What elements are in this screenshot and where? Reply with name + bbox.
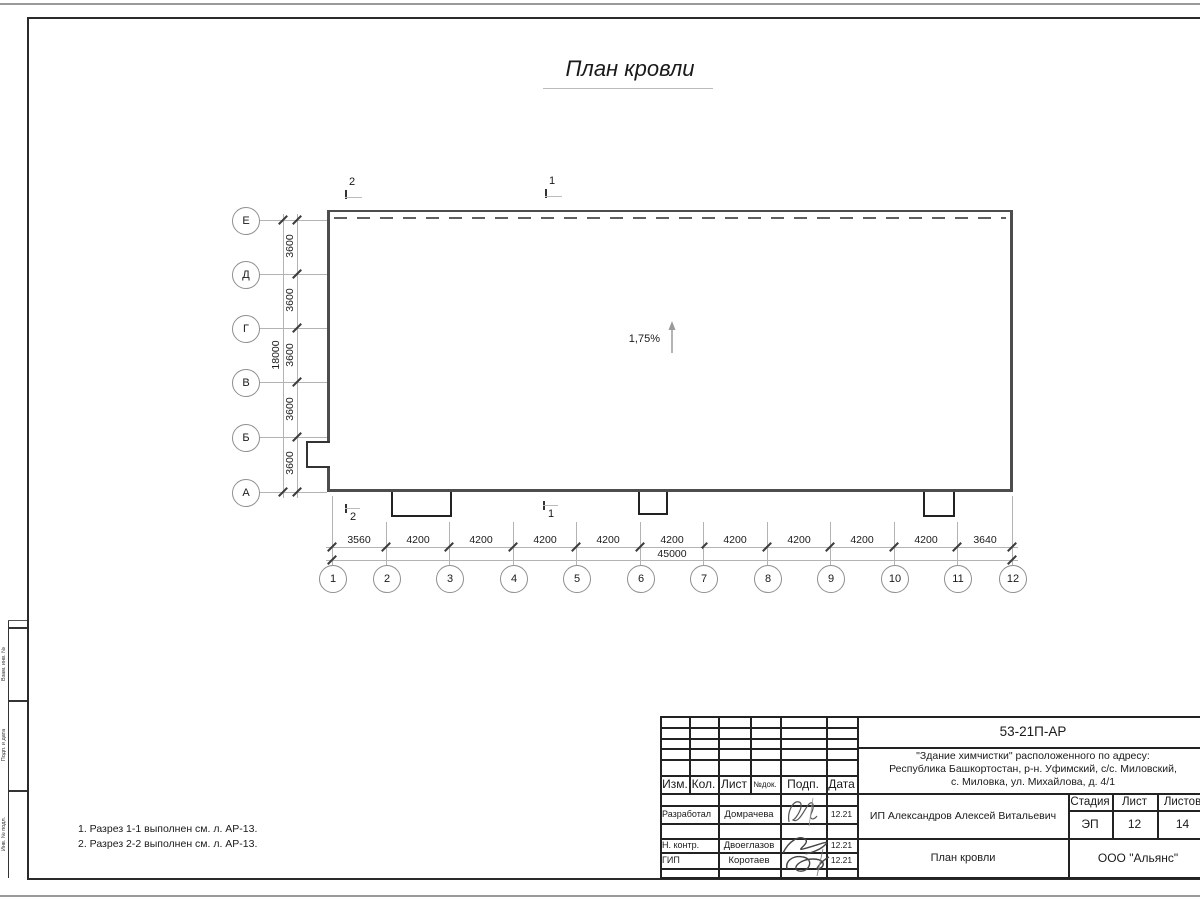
dim-label: 4200 — [777, 534, 821, 546]
dim-label: 3600 — [284, 226, 296, 266]
section-number: 2 — [350, 511, 356, 523]
dim-label: 4200 — [650, 534, 694, 546]
tb-header-ndok: №док. — [750, 775, 780, 793]
dim-label: 4200 — [840, 534, 884, 546]
dim-label: 3600 — [284, 280, 296, 320]
tb-header-list: Лист — [718, 775, 750, 793]
slope-arrow-icon — [666, 321, 678, 355]
screen-bottom-line — [0, 895, 1200, 897]
dim-label: 3600 — [284, 389, 296, 429]
axis-bubble: А — [232, 479, 260, 507]
axis-bubble: 8 — [754, 565, 782, 593]
frame-side-label: Подп. и дата — [0, 700, 8, 790]
axis-bubble: 6 — [627, 565, 655, 593]
wall-notch-bottom — [638, 492, 668, 515]
tb-doc-title: План кровли — [858, 838, 1068, 877]
drawing-sheet: Взам. инв. № Подп. и дата Инв. № подл. П… — [0, 0, 1200, 900]
tb-header-data: Дата — [826, 775, 857, 793]
axis-bubble: 11 — [944, 565, 972, 593]
section-number: 1 — [548, 508, 554, 520]
tb-stage-label: Стадия — [1068, 793, 1112, 810]
tb-name: Двоеглазов — [718, 838, 780, 852]
axis-bubble: 3 — [436, 565, 464, 593]
axis-bubble: Г — [232, 315, 260, 343]
section-number: 1 — [549, 175, 555, 187]
ridge-dashed-line — [334, 217, 1006, 219]
axis-bubble: 9 — [817, 565, 845, 593]
axis-bubble: 1 — [319, 565, 347, 593]
wall-notch-left — [306, 441, 330, 468]
tb-header-kol: Кол. — [689, 775, 718, 793]
signature-icon — [783, 794, 827, 830]
axis-bubble: Е — [232, 207, 260, 235]
tb-role: ГИП — [662, 852, 718, 868]
tb-company: ООО "Альянс" — [1068, 838, 1200, 877]
dim-total-label: 45000 — [642, 548, 702, 560]
frame-side-label: Инв. № подл. — [0, 790, 8, 878]
page-title: План кровли — [500, 56, 760, 82]
axis-bubble: 5 — [563, 565, 591, 593]
axis-bubble: Д — [232, 261, 260, 289]
dim-label: 3560 — [337, 534, 381, 546]
tb-date: 12.21 — [826, 805, 857, 823]
tb-role: Разработал — [662, 805, 718, 823]
tb-sheet-label: Лист — [1112, 793, 1157, 810]
note-line: 2. Разрез 2-2 выполнен см. л. АР-13. — [78, 837, 257, 852]
tb-sheets-label: Листов — [1157, 793, 1200, 810]
note-line: 1. Разрез 1-1 выполнен см. л. АР-13. — [78, 822, 257, 837]
axis-bubble: 2 — [373, 565, 401, 593]
frame-side-label: Взам. инв. № — [0, 627, 8, 700]
dim-label: 4200 — [713, 534, 757, 546]
signature-icon — [779, 831, 835, 877]
tb-project-line: с. Миловка, ул. Михайлова, д. 4/1 — [858, 776, 1200, 789]
tb-name: Домрачева — [718, 805, 780, 823]
tb-header-podp: Подп. — [780, 775, 826, 793]
tb-sheets-value: 14 — [1157, 810, 1200, 838]
wall-notch-bottom — [391, 492, 452, 517]
dim-total-label: 18000 — [270, 330, 282, 380]
slope-label: 1,75% — [600, 333, 660, 345]
axis-bubble: 4 — [500, 565, 528, 593]
axis-bubble: 7 — [690, 565, 718, 593]
wall-notch-bottom — [923, 492, 955, 517]
axis-bubble: В — [232, 369, 260, 397]
tb-doc-code: 53-21П-АР — [858, 716, 1200, 747]
tb-project-line: Республика Башкортостан, р-н. Уфимский, … — [858, 763, 1200, 776]
axis-bubble: 10 — [881, 565, 909, 593]
dim-label: 4200 — [459, 534, 503, 546]
tb-sheet-value: 12 — [1112, 810, 1157, 838]
axis-bubble: 12 — [999, 565, 1027, 593]
dim-label: 4200 — [523, 534, 567, 546]
dim-label: 4200 — [904, 534, 948, 546]
dim-label: 3640 — [963, 534, 1007, 546]
tb-client: ИП Александров Алексей Витальевич — [858, 793, 1068, 838]
tb-project-line: "Здание химчистки" расположенного по адр… — [858, 750, 1200, 763]
tb-project: "Здание химчистки" расположенного по адр… — [858, 750, 1200, 789]
tb-stage-value: ЭП — [1068, 810, 1112, 838]
dim-label: 3600 — [284, 335, 296, 375]
page-title-underline — [543, 88, 713, 89]
tb-role: Н. контр. — [662, 838, 718, 852]
tb-name: Коротаев — [718, 852, 780, 868]
screen-top-line — [0, 3, 1200, 5]
dim-label: 4200 — [396, 534, 440, 546]
notes: 1. Разрез 1-1 выполнен см. л. АР-13. 2. … — [78, 822, 257, 852]
tb-header-izm: Изм. — [661, 775, 689, 793]
dim-label: 4200 — [586, 534, 630, 546]
dim-label: 3600 — [284, 443, 296, 483]
axis-bubble: Б — [232, 424, 260, 452]
section-number: 2 — [349, 176, 355, 188]
